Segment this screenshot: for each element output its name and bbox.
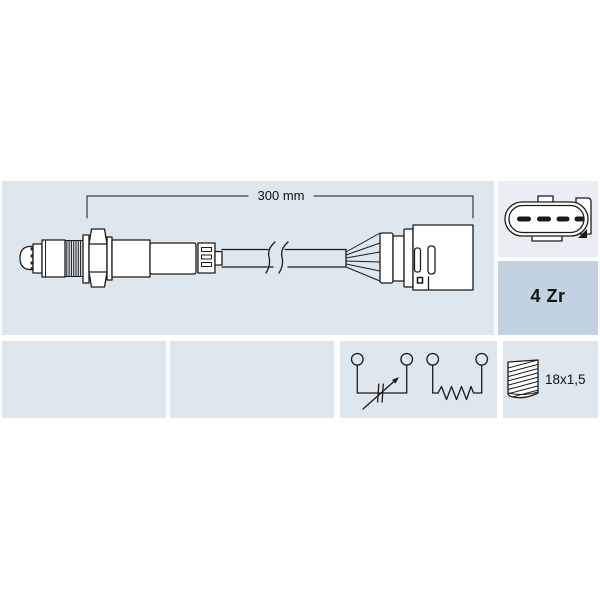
connector-plug-icon — [498, 181, 598, 257]
thread-size-label: 18x1,5 — [545, 372, 586, 387]
sensor-code-label: 4 Zr — [530, 286, 565, 307]
thread-spec-panel: 18x1,5 — [503, 341, 598, 418]
empty-spec-cell-2 — [170, 341, 334, 418]
connector-panel — [498, 181, 598, 257]
empty-spec-cell-1 — [2, 341, 166, 418]
oxygen-sensor-drawing-icon — [2, 181, 494, 335]
circuit-schematic-icon — [340, 341, 497, 418]
sensor-code-panel: 4 Zr — [498, 261, 598, 335]
wiring-schematic-panel — [340, 341, 497, 418]
product-diagram-card: 300 mm 4 Zr — [0, 0, 600, 600]
sensor-diagram-panel: 300 mm — [2, 181, 494, 335]
dimension-label: 300 mm — [246, 188, 316, 203]
